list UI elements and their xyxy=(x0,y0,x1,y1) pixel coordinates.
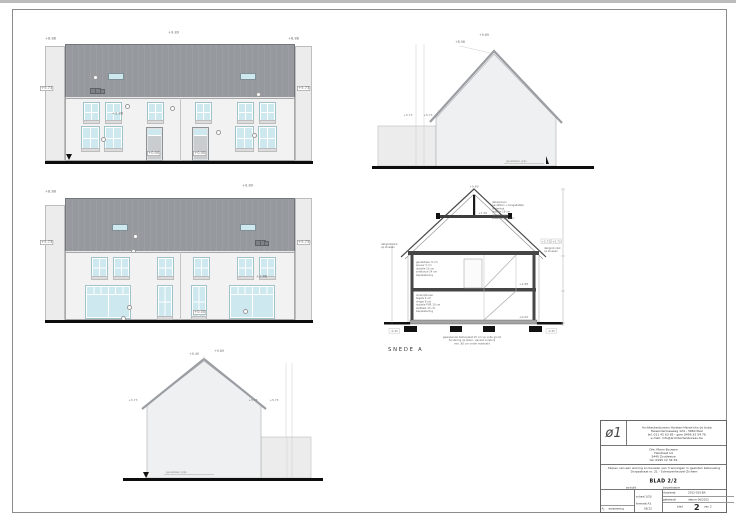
front-callout-circle xyxy=(101,137,106,142)
rear-neighbour-right xyxy=(295,198,312,323)
section-footing xyxy=(404,326,417,332)
sheet-sub-right: bouwdossier xyxy=(663,486,680,489)
leader-line xyxy=(460,46,490,53)
svg-text:bepleistering: bepleistering xyxy=(416,273,433,277)
side-right-dim-sub-ridge: +8.98 xyxy=(455,40,465,44)
rear-glass-door-left xyxy=(158,286,172,318)
side-left-dim-eaves-left: +5.73 xyxy=(129,398,138,402)
front-party-wall-line xyxy=(180,98,181,161)
sheet-sub-left: as-built xyxy=(626,486,636,489)
side-elevation-right: +8.98 +9.89 +5.73 +5.73 gevelsteen grijs xyxy=(372,28,596,175)
side-right-annex xyxy=(378,126,436,166)
section-snede-a: +9.89 +7.46 +5.73 +5.73 +2.88 +0.00 -0.4… xyxy=(380,183,570,355)
section-dim-found-right: -0.45 xyxy=(548,329,555,333)
project-line: Dorpsstraat nr. 21 - Scherpenheuvel-Zich… xyxy=(601,470,726,474)
fields-cell: dossiernr. 2012-015-BA getekend datum 06… xyxy=(663,490,734,512)
blad-row: blad 2 van 2 xyxy=(663,503,734,512)
front-window-lower xyxy=(105,127,122,150)
front-callout-circle xyxy=(216,130,221,135)
front-callout-circle xyxy=(125,104,130,109)
titleblock-bottom-row: A aanpassing 05/12 schaal 1/50 formaat A… xyxy=(601,490,726,512)
rear-dim-mid: +2.88 xyxy=(256,275,267,279)
front-dim-top-left: +8.88 xyxy=(45,37,56,41)
section-dim-floor: +2.88 xyxy=(519,282,528,286)
section-dim-found-left: -0.45 xyxy=(391,329,398,333)
rear-roof-vent xyxy=(264,241,269,246)
svg-text:op klossen: op klossen xyxy=(544,249,558,253)
page-top-edge xyxy=(0,0,736,3)
revision-date: 05/12 xyxy=(644,508,652,511)
rear-skylight-right xyxy=(240,224,256,231)
section-floor-buildup-note: vloeropbouw: tegels 2 cm chape 8 cm isol… xyxy=(416,293,441,313)
section-eaves-note-right: dakgoot zink op klossen xyxy=(544,246,561,253)
blad-word: blad xyxy=(677,506,683,509)
revision-row: A aanpassing 05/12 xyxy=(601,506,634,512)
field2-label: getekend xyxy=(663,498,674,500)
front-callout-circle xyxy=(170,106,175,111)
rear-callout-circle xyxy=(243,309,248,314)
architect-line: e-mail: info@architectenbureau.be xyxy=(642,437,712,441)
project-description: Slopen van een woning en bouwen van 3 wo… xyxy=(601,467,726,474)
section-foundation-note: gewapende betonplaat 15 cm op volle gron… xyxy=(443,335,502,345)
front-window-lower xyxy=(259,127,276,150)
front-dim-ridge: +9.89 xyxy=(168,31,179,35)
front-neighbour-right xyxy=(295,46,312,161)
side-right-dim-eaves-a: +5.73 xyxy=(404,113,413,117)
front-ground-line xyxy=(45,161,313,164)
revision-id: A xyxy=(601,508,604,511)
front-window-upper xyxy=(196,103,211,122)
side-left-ground-line xyxy=(123,478,323,481)
side-right-dim-ridge: +9.89 xyxy=(479,33,489,37)
field1-value: 2012-015-BA xyxy=(688,492,706,494)
front-dim-top-right: +8.88 xyxy=(288,37,299,41)
side-left-dim-eaves-a: +5.73 xyxy=(249,398,258,402)
rear-skylight-left xyxy=(112,224,128,231)
rear-sliding-window-right xyxy=(230,286,274,318)
rear-callout-circle xyxy=(127,305,132,310)
rear-dim-eaves-left: +5.73 xyxy=(40,240,53,245)
rear-neighbour-left xyxy=(45,205,65,323)
architect-info-cell: Architectenbureau Horsten-Hendrickx bv b… xyxy=(627,419,726,447)
side-left-annex xyxy=(261,437,311,478)
section-collar-block xyxy=(436,213,440,219)
front-skylight-right xyxy=(240,73,256,80)
section-dim-eaves-a: +5.73 xyxy=(542,240,551,244)
rear-sliding-window-left xyxy=(86,286,130,318)
section-floor-slab xyxy=(411,288,536,292)
format-label: formaat A3 xyxy=(636,503,651,506)
side-right-gable-wall xyxy=(436,54,556,166)
field2-value: datum 06/2012 xyxy=(688,498,709,500)
front-window-upper xyxy=(148,103,163,122)
front-callout-circle xyxy=(252,133,257,138)
rear-dim-eaves-right: +5.73 xyxy=(297,240,310,245)
section-footing xyxy=(529,326,542,332)
front-dim-door-left: +0.00 xyxy=(147,151,160,156)
rear-dim-top-left: +8.88 xyxy=(45,190,56,194)
section-door xyxy=(464,259,482,288)
rear-callout-circle xyxy=(133,234,138,239)
front-window-upper xyxy=(84,103,99,122)
rear-window-upper xyxy=(158,258,173,278)
rear-dim-door: +0.00 xyxy=(193,310,206,315)
section-roof-buildup-note: dakpannen panlatten + tengellatten onder… xyxy=(492,200,524,220)
front-roof-vent xyxy=(100,89,105,94)
front-window-lower xyxy=(82,127,99,150)
scale-label: schaal 1/50 xyxy=(636,496,652,499)
section-wall-buildup-note: gevelsteen 9 cm spouw 3 cm isolatie 10 c… xyxy=(416,260,438,277)
front-window-lower xyxy=(236,127,253,150)
svg-text:bepleistering: bepleistering xyxy=(416,309,433,313)
side-left-dim-ridge: +9.89 xyxy=(214,349,224,353)
side-right-material-note: gevelsteen grijs xyxy=(506,159,527,163)
front-dim-door-right: +0.00 xyxy=(193,151,206,156)
section-eaves-note-left: dakgoot zink op klossen xyxy=(381,242,398,249)
front-neighbour-left xyxy=(45,46,65,161)
front-level-marker xyxy=(66,154,72,160)
svg-text:op klossen: op klossen xyxy=(381,245,395,249)
section-attic-slab xyxy=(408,251,539,255)
side-elevation-left: +9.49 +9.89 +5.73 +5.73 +5.73 gevelsteen… xyxy=(120,345,325,500)
svg-text:afwerking gyproc: afwerking gyproc xyxy=(492,216,515,220)
side-right-dim-eaves-b: +5.73 xyxy=(424,113,433,117)
title-block: ø1 Architectenbureau Horsten-Hendrickx b… xyxy=(600,420,727,513)
rear-dim-ridge: +9.89 xyxy=(242,184,253,188)
front-window-upper xyxy=(260,103,275,122)
section-dim-collar: +7.46 xyxy=(478,211,487,215)
titleblock-project-row: Slopen van een woning en bouwen van 3 wo… xyxy=(601,465,726,490)
drawing-sheet: +9.89 +8.88 +8.88 +5.73 +5.73 +2.88 +0.0… xyxy=(0,0,736,520)
section-footing xyxy=(450,326,462,332)
architect-logo: ø1 xyxy=(605,426,621,441)
front-window-upper xyxy=(238,103,253,122)
section-dim-ridge: +9.89 xyxy=(469,185,478,189)
titleblock-architect-row: ø1 Architectenbureau Horsten-Hendrickx b… xyxy=(601,421,726,446)
titleblock-client-row: Dhr. Mario Bouwen Heistraat 14 3440 Zout… xyxy=(601,446,726,465)
front-dim-eaves-left: +5.73 xyxy=(40,86,53,91)
logo-cell: ø1 xyxy=(601,421,627,445)
rear-party-wall-line xyxy=(180,252,181,320)
section-ground-left xyxy=(384,322,410,325)
front-callout-circle xyxy=(256,92,261,97)
rear-window-upper xyxy=(194,258,209,278)
side-left-gable-wall xyxy=(147,361,261,478)
side-left-dim-eaves-b: +5.73 xyxy=(270,398,279,402)
front-callout-circle xyxy=(93,75,98,80)
section-stairs xyxy=(484,255,516,320)
front-dim-mid: +2.88 xyxy=(112,112,123,116)
blad-of: van 2 xyxy=(704,506,712,509)
sheet-sub-labels: as-built bouwdossier xyxy=(626,485,700,490)
revision-empty-row xyxy=(601,490,634,506)
side-left-material-note: gevelsteen grijs xyxy=(166,470,187,474)
section-ridge-post xyxy=(473,195,475,217)
revision-table: A aanpassing 05/12 xyxy=(601,490,635,512)
side-right-ground-line xyxy=(372,166,594,169)
rear-window-upper xyxy=(238,258,253,278)
blad-number: 2 xyxy=(694,503,700,512)
section-ground-slab xyxy=(410,320,537,324)
rear-window-upper xyxy=(114,258,129,278)
section-dim-eaves-b: +5.73 xyxy=(552,240,561,244)
section-ground-right xyxy=(537,322,563,325)
front-skylight-left xyxy=(108,73,124,80)
sheet-number-label: BLAD 2/2 xyxy=(650,478,678,484)
front-dim-eaves-right: +5.73 xyxy=(297,86,310,91)
client-info: Dhr. Mario Bouwen Heistraat 14 3440 Zout… xyxy=(632,448,695,462)
rear-ground-line xyxy=(45,320,313,323)
section-footing xyxy=(483,326,495,332)
side-left-dim-sub-ridge: +9.49 xyxy=(189,352,199,356)
section-title: SNEDE A xyxy=(388,347,424,353)
svg-text:min. 80 cm onder maaiveld: min. 80 cm onder maaiveld xyxy=(454,341,490,345)
revision-desc: aanpassing xyxy=(608,508,624,511)
architect-info: Architectenbureau Horsten-Hendrickx bv b… xyxy=(642,426,712,440)
client-line: tel. 0495 12 34 56 xyxy=(632,459,695,463)
section-dim-ground: +0.00 xyxy=(519,315,528,319)
rear-window-upper xyxy=(92,258,107,278)
field1-label: dossiernr. xyxy=(663,492,674,494)
